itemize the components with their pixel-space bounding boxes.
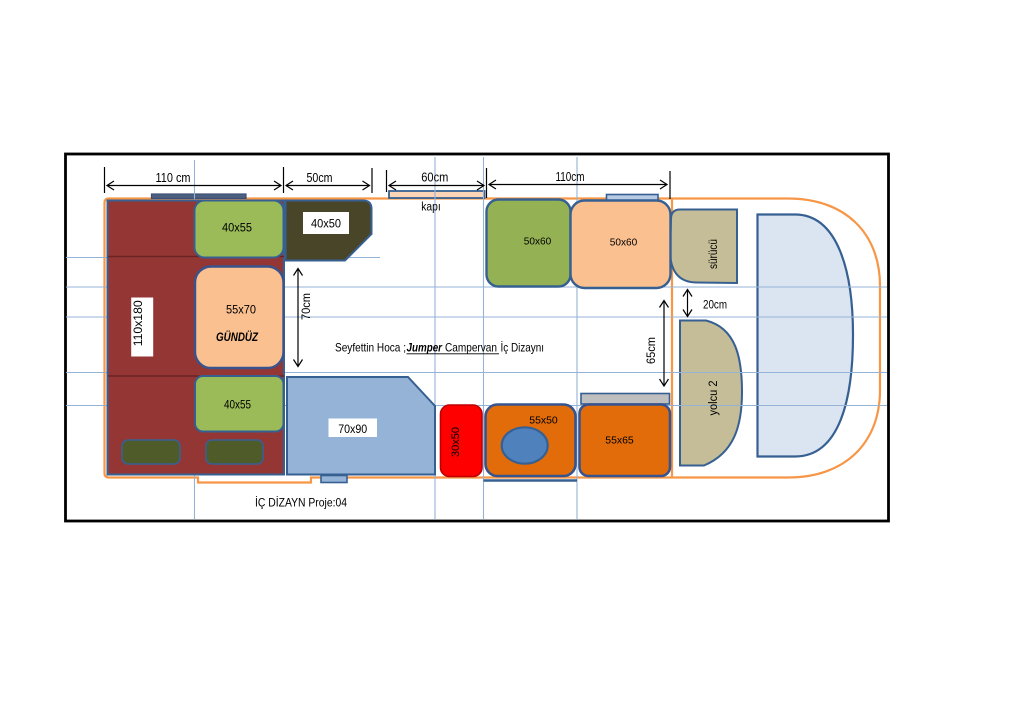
svg-text:110cm: 110cm	[556, 169, 585, 184]
svg-text:50x60: 50x60	[524, 236, 552, 248]
svg-text:55x65: 55x65	[605, 434, 634, 446]
svg-text:40x55: 40x55	[224, 398, 251, 412]
svg-text:40x55: 40x55	[222, 221, 252, 235]
svg-text:GÜNDÜZ: GÜNDÜZ	[216, 329, 259, 344]
svg-text:30x50: 30x50	[450, 427, 462, 457]
svg-text:40x50: 40x50	[311, 217, 341, 231]
svg-text:Seyfettin Hoca ;: Seyfettin Hoca ;	[335, 341, 406, 355]
svg-text:İç Dizaynı: İç Dizaynı	[501, 341, 545, 355]
svg-text:55x50: 55x50	[529, 414, 558, 426]
svg-text:65cm: 65cm	[646, 337, 658, 364]
svg-text:50x60: 50x60	[610, 237, 638, 249]
svg-text:sürücü: sürücü	[708, 239, 720, 269]
svg-text:50cm: 50cm	[307, 170, 333, 185]
svg-text:Jumper: Jumper	[407, 341, 444, 355]
svg-text:70cm: 70cm	[301, 293, 313, 320]
svg-text:60cm: 60cm	[421, 170, 448, 185]
svg-text:70x90: 70x90	[338, 422, 367, 436]
svg-text:Campervan: Campervan	[445, 341, 497, 355]
svg-text:yolcu 2: yolcu 2	[708, 381, 720, 416]
svg-text:kapı: kapı	[421, 202, 441, 214]
svg-text:55x70: 55x70	[226, 303, 256, 317]
svg-text:20cm: 20cm	[703, 300, 727, 312]
svg-text:110 cm: 110 cm	[156, 170, 191, 185]
svg-text:110x180: 110x180	[131, 300, 145, 346]
svg-text:İÇ DİZAYN Proje:04: İÇ DİZAYN Proje:04	[255, 496, 347, 510]
